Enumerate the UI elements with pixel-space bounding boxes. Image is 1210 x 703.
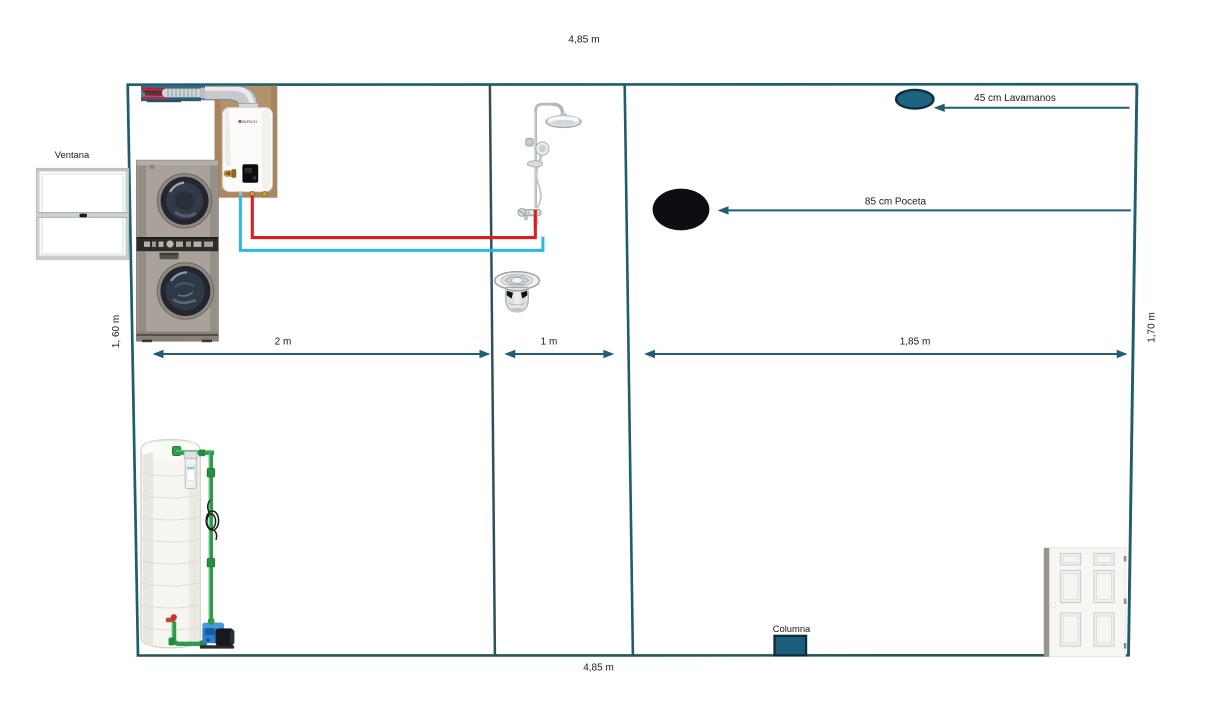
svg-text:4,85 m: 4,85 m (583, 663, 614, 674)
svg-text:88: 88 (246, 170, 250, 174)
svg-text:1 m: 1 m (541, 337, 558, 348)
svg-text:Ventana: Ventana (55, 149, 90, 160)
svg-text:45 cm Lavamanos: 45 cm Lavamanos (974, 93, 1056, 104)
svg-text:1,70 m: 1,70 m (1147, 312, 1158, 343)
svg-text:1,85 m: 1,85 m (900, 337, 931, 348)
svg-text:4,85 m: 4,85 m (568, 35, 599, 46)
svg-text:Columna: Columna (773, 623, 811, 634)
svg-text:85 cm Poceta: 85 cm Poceta (865, 197, 927, 208)
svg-text:BOSCH: BOSCH (242, 120, 257, 124)
svg-text:1, 60 m: 1, 60 m (111, 315, 122, 348)
svg-text:2 m: 2 m (275, 337, 292, 348)
